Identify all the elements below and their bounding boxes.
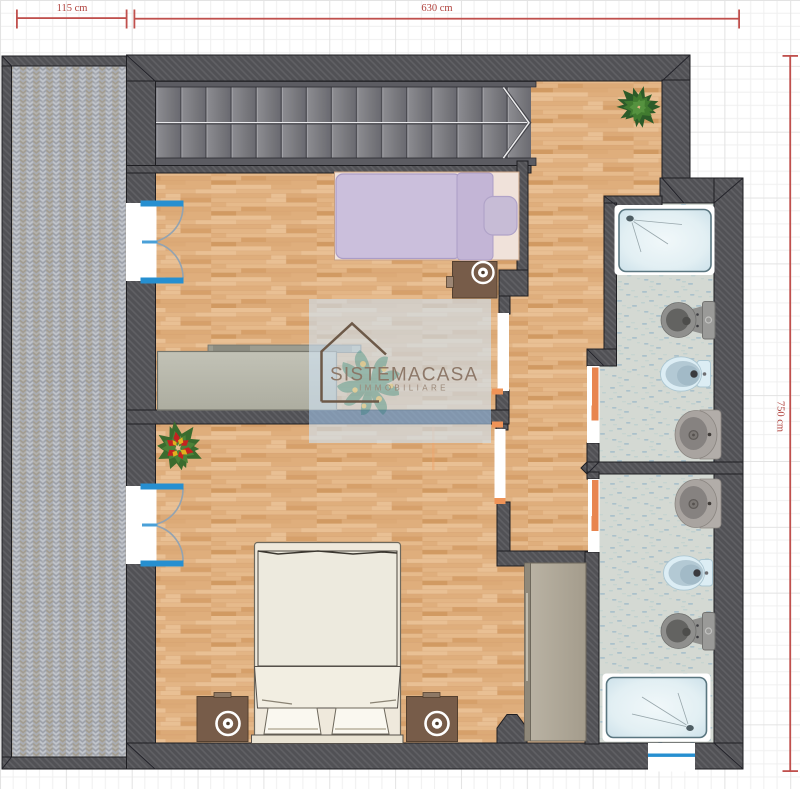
svg-text:630 cm: 630 cm xyxy=(421,3,452,14)
svg-text:750 cm: 750 cm xyxy=(775,401,786,432)
svg-text:IMMOBILIARE: IMMOBILIARE xyxy=(359,384,449,393)
svg-text:115 cm: 115 cm xyxy=(57,3,88,14)
svg-text:SISTEMACASA: SISTEMACASA xyxy=(330,365,478,386)
